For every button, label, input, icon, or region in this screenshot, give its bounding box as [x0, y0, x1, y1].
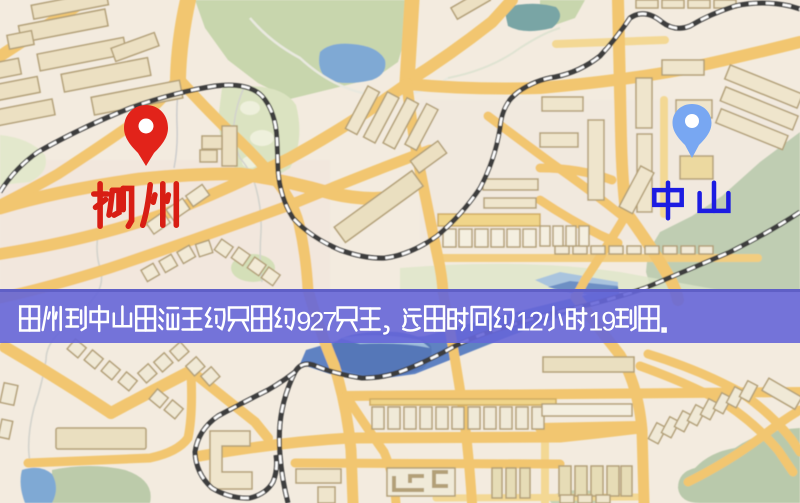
svg-text:9: 9 — [601, 307, 616, 337]
svg-text:2: 2 — [529, 307, 544, 337]
svg-text:7: 7 — [322, 307, 337, 337]
